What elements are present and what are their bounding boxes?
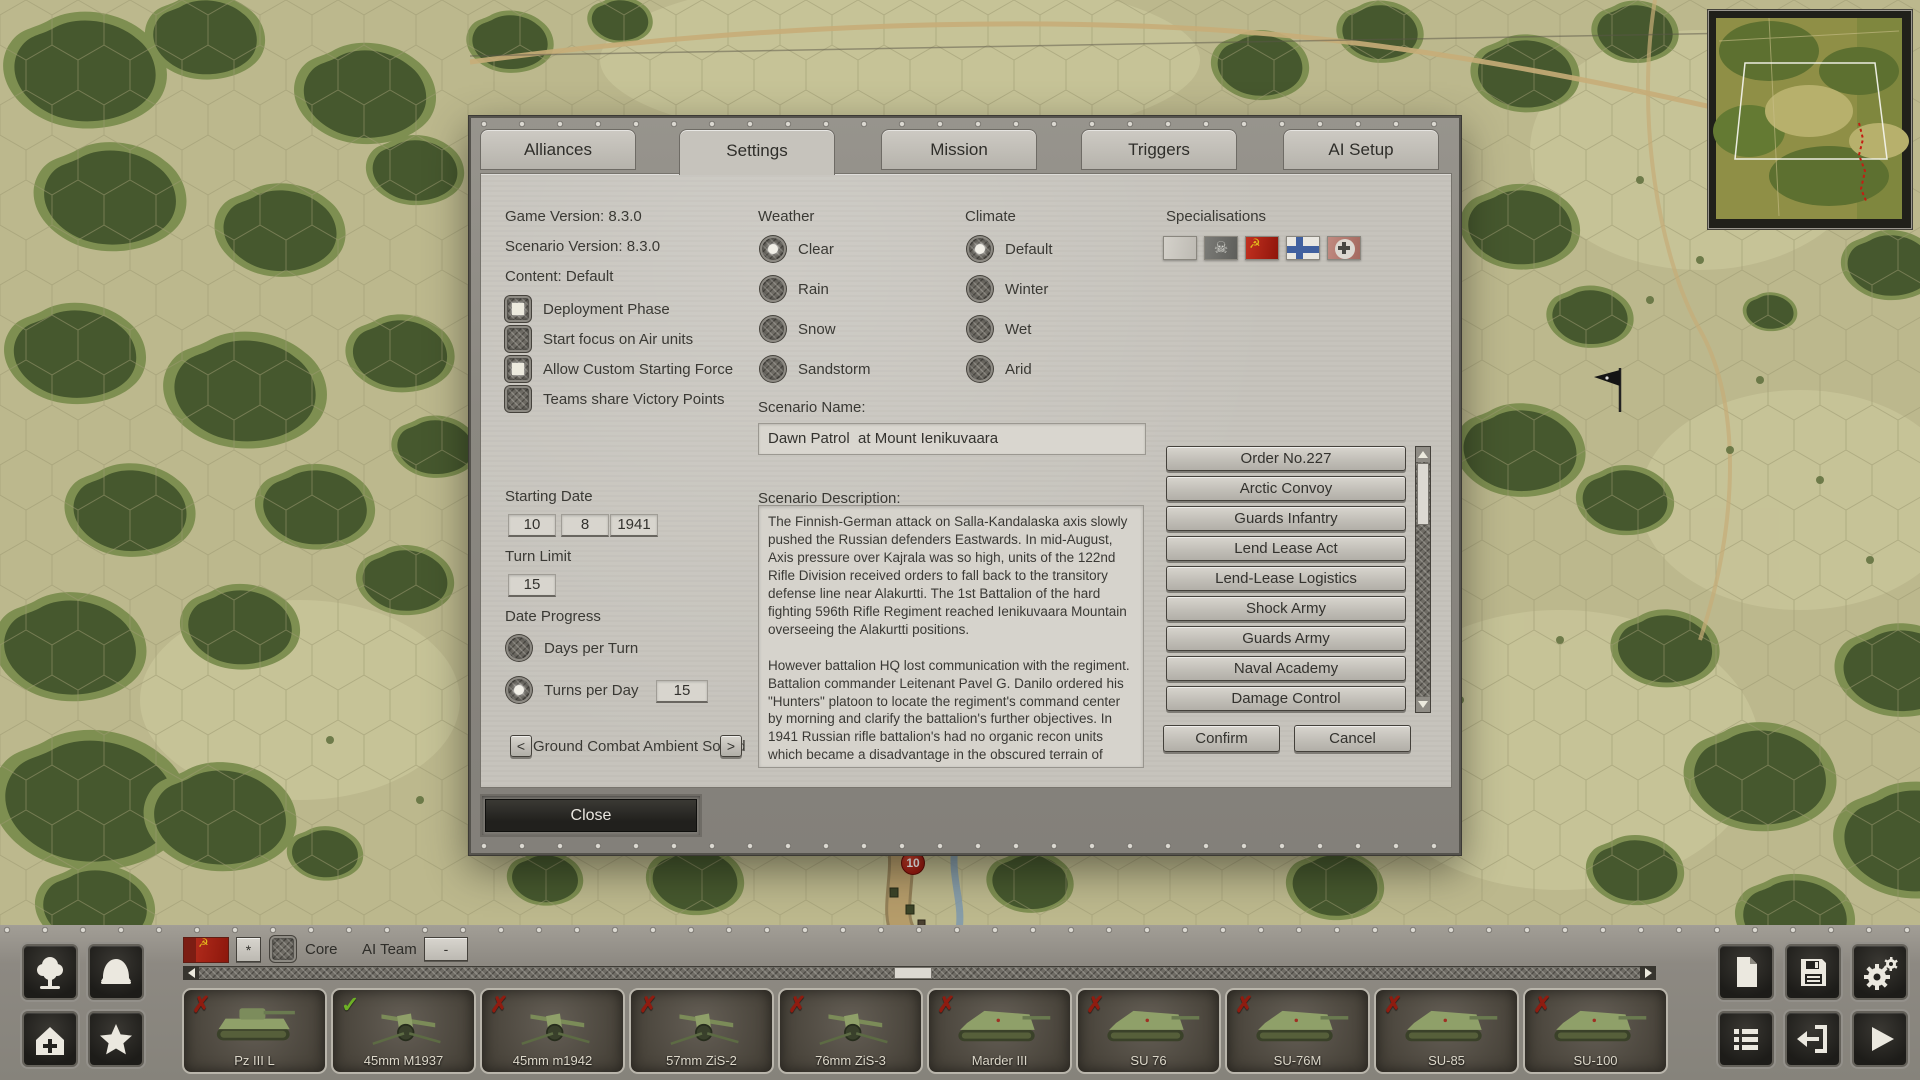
save-icon — [1793, 952, 1833, 992]
climate-radio[interactable] — [967, 356, 993, 382]
list-icon — [1726, 1019, 1766, 1059]
scenario-version-label: Scenario Version: 8.3.0 — [505, 238, 660, 255]
weather-option: Snow — [760, 316, 871, 342]
unit-name: SU 76 — [1078, 1053, 1219, 1068]
at-gun-sprite-icon — [799, 997, 903, 1049]
ai-team-dropdown[interactable]: - — [424, 937, 468, 961]
rivet-strip — [0, 925, 1920, 935]
option-checkbox[interactable] — [505, 296, 531, 322]
unit-status-icon — [1235, 992, 1253, 1018]
terrain-button[interactable] — [22, 944, 78, 1000]
scenario-settings-dialog: AlliancesSettingsMissionTriggersAI Setup… — [469, 116, 1461, 855]
exit-button[interactable] — [1785, 1011, 1841, 1067]
special-rule-button[interactable]: Order No.227 — [1166, 446, 1406, 471]
at-gun-sprite-icon — [352, 997, 456, 1049]
star-icon — [96, 1019, 136, 1059]
date-progress-option: Turns per Day 15 — [506, 677, 722, 703]
climate-radio[interactable] — [967, 236, 993, 262]
date-day-field[interactable]: 10 — [508, 514, 556, 537]
flag-stripe — [184, 938, 196, 962]
weather-label: Weather — [758, 208, 814, 225]
special-rule-button[interactable]: Lend-Lease Logistics — [1166, 566, 1406, 591]
add-building-button[interactable] — [22, 1011, 78, 1067]
unit-card[interactable]: SU-85 — [1374, 988, 1519, 1074]
unit-card[interactable]: 45mm M1937 — [331, 988, 476, 1074]
unit-card[interactable]: 57mm ZiS-2 — [629, 988, 774, 1074]
specialisations-label: Specialisations — [1166, 208, 1266, 225]
unit-name: 45mm M1937 — [333, 1053, 474, 1068]
scroll-right-icon[interactable] — [1640, 966, 1656, 980]
tank-sprite-icon — [203, 997, 307, 1049]
option-row: Deployment Phase — [505, 296, 733, 322]
special-rules-scrollbar[interactable] — [1415, 446, 1431, 713]
unit-name: SU-100 — [1525, 1053, 1666, 1068]
climate-option: Winter — [967, 276, 1053, 302]
climate-option-label: Default — [1005, 241, 1053, 258]
weather-option-label: Rain — [798, 281, 829, 298]
scroll-down-icon[interactable] — [1416, 697, 1430, 712]
unit-name: SU-85 — [1376, 1053, 1517, 1068]
ai-team-label: AI Team — [362, 941, 417, 958]
climate-option-label: Arid — [1005, 361, 1032, 378]
unit-card[interactable]: Pz III L — [182, 988, 327, 1074]
specialisation-flags — [1163, 236, 1361, 260]
house-plus-icon — [30, 1019, 70, 1059]
turns-per-day-field[interactable]: 15 — [656, 680, 708, 703]
scenario-name-label: Scenario Name: — [758, 399, 866, 416]
climate-label: Climate — [965, 208, 1016, 225]
exit-icon — [1793, 1019, 1833, 1059]
special-rule-button[interactable]: Lend Lease Act — [1166, 536, 1406, 561]
play-icon — [1860, 1019, 1900, 1059]
spg-sprite-icon — [1395, 997, 1499, 1049]
specialisation-flag-icon[interactable] — [1204, 236, 1238, 260]
option-row: Start focus on Air units — [505, 326, 733, 352]
unit-status-icon — [341, 992, 359, 1018]
unit-status-icon — [1533, 992, 1551, 1018]
unit-card[interactable]: SU-100 — [1523, 988, 1668, 1074]
ambient-next-button[interactable]: > — [720, 735, 742, 757]
climate-option: Arid — [967, 356, 1053, 382]
unit-name: 57mm ZiS-2 — [631, 1053, 772, 1068]
close-button[interactable]: Close — [485, 799, 697, 832]
scenario-description-box[interactable]: The Finnish-German attack on Salla-Kanda… — [758, 505, 1144, 768]
at-gun-sprite-icon — [501, 997, 605, 1049]
unit-list: Pz III L — [182, 988, 1668, 1074]
faction-flag-soviet[interactable] — [183, 937, 229, 963]
weather-radio[interactable] — [760, 276, 786, 302]
checkbox-mark-icon — [512, 363, 524, 375]
turn-limit-label: Turn Limit — [505, 548, 571, 565]
date-progress-option: Days per Turn — [506, 635, 722, 661]
scroll-left-icon[interactable] — [183, 966, 199, 980]
option-label: Allow Custom Starting Force — [543, 361, 733, 378]
unit-name: Pz III L — [184, 1053, 325, 1068]
save-button[interactable] — [1785, 944, 1841, 1000]
new-scenario-button[interactable] — [1718, 944, 1774, 1000]
date-month-field[interactable]: 8 — [561, 514, 609, 537]
unit-list-button[interactable] — [1718, 1011, 1774, 1067]
specialisation-flag-icon[interactable] — [1286, 236, 1320, 260]
weather-options: Clear Rain Snow Sandstorm — [760, 236, 871, 382]
weather-radio[interactable] — [760, 356, 786, 382]
starting-date-label: Starting Date — [505, 488, 593, 505]
at-gun-sprite-icon — [650, 997, 754, 1049]
specialisation-flag-icon[interactable] — [1163, 236, 1197, 260]
tree-icon — [30, 952, 70, 992]
special-rule-button[interactable]: Arctic Convoy — [1166, 476, 1406, 501]
star-filter-button[interactable]: * — [236, 937, 261, 962]
date-progress-radio[interactable] — [506, 677, 532, 703]
checkbox-mark-icon — [512, 303, 524, 315]
date-progress-option-label: Days per Turn — [544, 640, 638, 657]
unit-status-icon — [192, 992, 210, 1018]
scrollbar-thumb[interactable] — [1417, 463, 1429, 525]
option-row: Allow Custom Starting Force — [505, 356, 733, 382]
option-label: Teams share Victory Points — [543, 391, 724, 408]
ambient-prev-button[interactable]: < — [510, 735, 532, 757]
settings-gears-icon — [1860, 952, 1900, 992]
unit-name: 76mm ZiS-3 — [780, 1053, 921, 1068]
climate-option: Default — [967, 236, 1053, 262]
cancel-button[interactable]: Cancel — [1294, 725, 1411, 752]
radio-dot-icon — [768, 244, 778, 254]
unit-status-icon — [937, 992, 955, 1018]
favorites-button[interactable] — [88, 1011, 144, 1067]
spg-sprite-icon — [948, 997, 1052, 1049]
unit-card[interactable]: Marder III — [927, 988, 1072, 1074]
unit-name: SU-76M — [1227, 1053, 1368, 1068]
unit-card[interactable]: SU-76M — [1225, 988, 1370, 1074]
dialog-tab-bar: AlliancesSettingsMissionTriggersAI Setup — [471, 129, 1459, 175]
date-progress-option-label: Turns per Day — [544, 682, 638, 699]
climate-option-label: Winter — [1005, 281, 1048, 298]
weather-option-label: Sandstorm — [798, 361, 871, 378]
unit-status-icon — [639, 992, 657, 1018]
date-progress-radio[interactable] — [506, 635, 532, 661]
unit-status-icon — [490, 992, 508, 1018]
specialisation-flag-icon[interactable] — [1327, 236, 1361, 260]
game-screen: 10 AlliancesSettingsMissionTriggersAI Se… — [0, 0, 1920, 1080]
option-label: Start focus on Air units — [543, 331, 693, 348]
rivet-strip — [477, 119, 1453, 129]
climate-options: Default Winter Wet Arid — [967, 236, 1053, 382]
play-button[interactable] — [1852, 1011, 1908, 1067]
weather-radio[interactable] — [760, 316, 786, 342]
unit-card[interactable]: 76mm ZiS-3 — [778, 988, 923, 1074]
rivet-strip — [477, 841, 1453, 851]
ambient-sound-label: Ground Combat Ambient Sound — [533, 738, 729, 755]
option-label: Deployment Phase — [543, 301, 670, 318]
climate-radio[interactable] — [967, 276, 993, 302]
weather-option-label: Clear — [798, 241, 834, 258]
dialog-tab[interactable]: Alliances — [480, 129, 636, 170]
unit-card[interactable]: 45mm m1942 — [480, 988, 625, 1074]
climate-option: Wet — [967, 316, 1053, 342]
dialog-tab[interactable]: AI Setup — [1283, 129, 1439, 170]
special-rule-button[interactable]: Guards Army — [1166, 626, 1406, 651]
option-row: Teams share Victory Points — [505, 386, 733, 412]
core-label: Core — [305, 941, 338, 958]
minimap[interactable] — [1708, 10, 1912, 229]
unit-status-icon — [1384, 992, 1402, 1018]
date-progress-label: Date Progress — [505, 608, 601, 625]
unit-name: Marder III — [929, 1053, 1070, 1068]
special-rule-button[interactable]: Shock Army — [1166, 596, 1406, 621]
special-rule-button[interactable]: Naval Academy — [1166, 656, 1406, 681]
weather-option: Clear — [760, 236, 871, 262]
new-file-icon — [1726, 952, 1766, 992]
close-button-frame: Close — [480, 794, 702, 837]
confirm-button[interactable]: Confirm — [1163, 725, 1280, 752]
scroll-up-icon[interactable] — [1416, 447, 1430, 462]
specialisation-flag-icon[interactable] — [1245, 236, 1279, 260]
weather-option: Sandstorm — [760, 356, 871, 382]
climate-option-label: Wet — [1005, 321, 1031, 338]
date-year-field[interactable]: 1941 — [610, 514, 658, 537]
weather-option: Rain — [760, 276, 871, 302]
spg-sprite-icon — [1544, 997, 1648, 1049]
weather-radio[interactable] — [760, 236, 786, 262]
option-checkbox[interactable] — [505, 326, 531, 352]
unit-status-icon — [788, 992, 806, 1018]
unit-name: 45mm m1942 — [482, 1053, 623, 1068]
special-rules-list: Order No.227Arctic ConvoyGuards Infantry… — [1166, 446, 1406, 711]
settings-button[interactable] — [1852, 944, 1908, 1000]
unit-scrollbar-thumb[interactable] — [894, 967, 932, 979]
scenario-name-field[interactable]: Dawn Patrol at Mount Ienikuvaara — [758, 423, 1146, 455]
game-version-label: Game Version: 8.3.0 — [505, 208, 642, 225]
special-rule-button[interactable]: Damage Control — [1166, 686, 1406, 711]
dialog-tab[interactable]: Mission — [881, 129, 1037, 170]
unit-status-icon — [1086, 992, 1104, 1018]
dialog-tab[interactable]: Triggers — [1081, 129, 1237, 170]
turn-limit-field[interactable]: 15 — [508, 574, 556, 597]
special-rule-button[interactable]: Guards Infantry — [1166, 506, 1406, 531]
spg-sprite-icon — [1246, 997, 1350, 1049]
option-checkbox[interactable] — [505, 356, 531, 382]
scenario-options: Deployment Phase Start focus on Air unit… — [505, 296, 733, 412]
settings-panel: Game Version: 8.3.0 Scenario Version: 8.… — [480, 173, 1452, 788]
radio-dot-icon — [514, 685, 524, 695]
spg-sprite-icon — [1097, 997, 1201, 1049]
content-label: Content: Default — [505, 268, 613, 285]
units-button[interactable] — [88, 944, 144, 1000]
soviet-flag-icon — [196, 938, 228, 962]
helmet-icon — [96, 952, 136, 992]
radio-dot-icon — [975, 244, 985, 254]
unit-card[interactable]: SU 76 — [1076, 988, 1221, 1074]
date-progress-options: Days per Turn Turns per Day 15 — [506, 635, 722, 703]
dialog-tab[interactable]: Settings — [679, 129, 835, 175]
core-checkbox[interactable] — [270, 936, 296, 962]
climate-radio[interactable] — [967, 316, 993, 342]
option-checkbox[interactable] — [505, 386, 531, 412]
weather-option-label: Snow — [798, 321, 836, 338]
